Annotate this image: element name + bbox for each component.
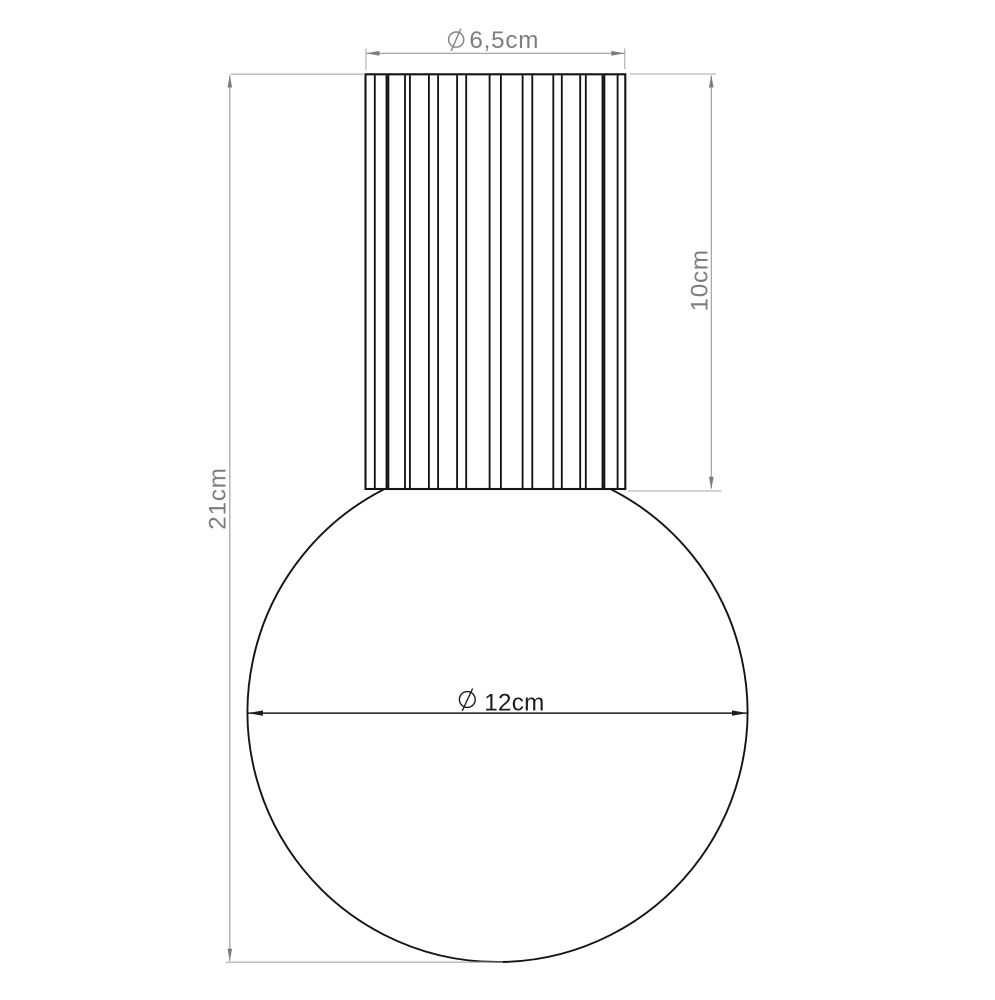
svg-text:6,5cm: 6,5cm — [469, 27, 539, 54]
svg-text:10cm: 10cm — [687, 249, 714, 311]
svg-text:21cm: 21cm — [205, 467, 232, 529]
svg-text:12cm: 12cm — [484, 689, 544, 716]
